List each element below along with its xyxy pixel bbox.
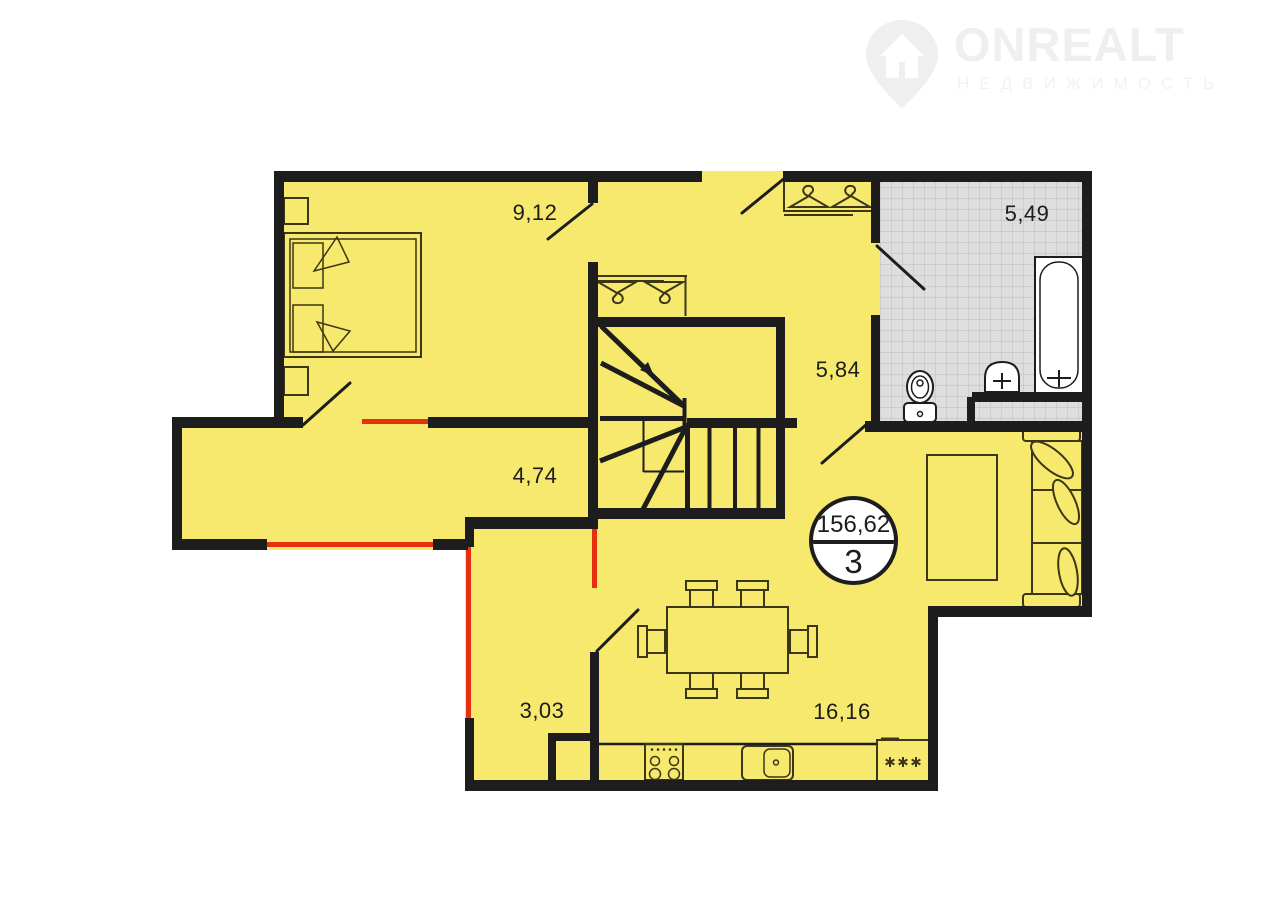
total-area-value: 156,62 — [813, 500, 894, 540]
logo-subtitle-text: НЕДВИЖИМОСТЬ — [957, 74, 1224, 94]
room-label-storage: 3,03 — [520, 698, 565, 724]
chair — [686, 689, 717, 698]
room-label-corridor: 4,74 — [513, 463, 558, 489]
area-badge: 156,62 3 — [809, 496, 898, 585]
chair — [808, 626, 817, 657]
floor-fills — [172, 171, 1092, 790]
fridge — [877, 739, 929, 782]
room-label-bedroom: 9,12 — [513, 200, 558, 226]
chair — [638, 626, 647, 657]
room-label-bathroom: 5,49 — [1005, 201, 1050, 227]
chair — [737, 581, 768, 590]
bathroom-sink — [985, 362, 1019, 392]
toilet — [904, 371, 936, 422]
dining-table — [667, 607, 788, 673]
floor-plan-drawing — [0, 0, 1265, 910]
floor-plan-page: 9,12 5,49 5,84 4,74 3,03 16,16 156,62 3 … — [0, 0, 1265, 910]
house-pin-icon — [866, 20, 938, 108]
bathtub — [1035, 257, 1083, 393]
logo-brand-text: ONREALT — [954, 20, 1224, 70]
chair — [686, 581, 717, 590]
room-label-kitchen-living: 16,16 — [813, 699, 871, 725]
onrealt-logo: ONREALT НЕДВИЖИМОСТЬ — [866, 20, 1224, 108]
room-label-hallway: 5,84 — [816, 357, 861, 383]
chair — [737, 689, 768, 698]
